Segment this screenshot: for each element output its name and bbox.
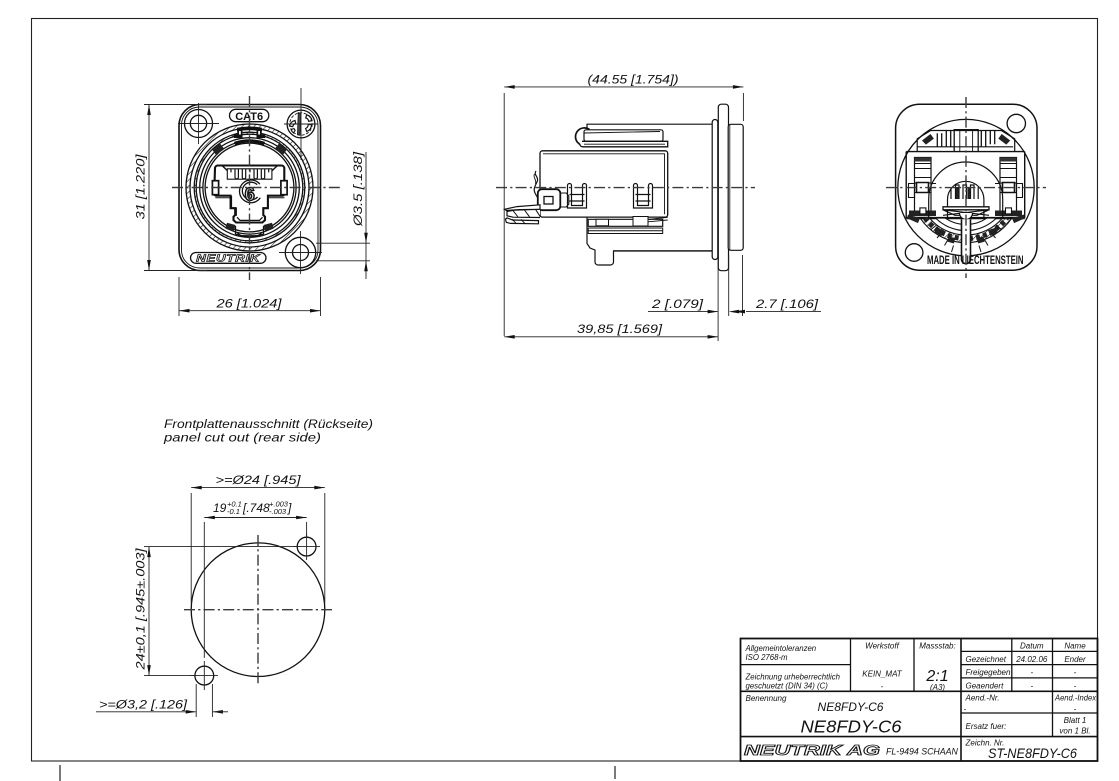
svg-text:(A3): (A3) (930, 683, 945, 692)
svg-text:MADE IN LIECHTENSTEIN: MADE IN LIECHTENSTEIN (927, 253, 1024, 267)
svg-text:ST-NE8FDY-C6: ST-NE8FDY-C6 (988, 745, 1077, 761)
svg-text:panel cut out (rear side): panel cut out (rear side) (163, 431, 321, 445)
svg-text:Aend.-Nr.: Aend.-Nr. (965, 694, 1000, 703)
svg-text:Aend.-Index: Aend.-Index (1054, 694, 1097, 703)
svg-text:26 [1.024]: 26 [1.024] (215, 297, 282, 311)
svg-text:Blatt 1: Blatt 1 (1064, 716, 1087, 725)
svg-text:Allgemeintoleranzen: Allgemeintoleranzen (745, 644, 817, 653)
svg-text:NE8FDY-C6: NE8FDY-C6 (818, 700, 884, 714)
svg-text:ISO 2768-m: ISO 2768-m (746, 653, 789, 662)
svg-text:von 1 Bl.: von 1 Bl. (1059, 727, 1090, 736)
svg-text:Massstab:: Massstab: (919, 642, 955, 651)
svg-text:Freigegeben: Freigegeben (966, 668, 1011, 677)
svg-text:>=Ø3,2 [.126]: >=Ø3,2 [.126] (99, 698, 188, 712)
svg-text:Frontplattenausschnitt (Rückse: Frontplattenausschnitt (Rückseite) (164, 417, 373, 431)
svg-text:Gezeichnet: Gezeichnet (966, 655, 1007, 664)
svg-text:-: - (1074, 681, 1077, 690)
svg-text:-: - (881, 682, 884, 691)
svg-text:24.02.06: 24.02.06 (1015, 655, 1048, 664)
svg-text:-: - (1030, 668, 1033, 677)
svg-text:2 [.079]: 2 [.079] (651, 297, 704, 311)
svg-text:Ersatz fuer:: Ersatz fuer: (966, 722, 1007, 731)
svg-text:Benennung: Benennung (746, 694, 787, 703)
svg-text:-: - (1074, 705, 1077, 714)
svg-text:NEUTRIK AG: NEUTRIK AG (744, 743, 880, 759)
svg-text:31 [1.220]: 31 [1.220] (134, 154, 148, 220)
svg-text:19: 19 (213, 501, 227, 515)
svg-text:-0.1: -0.1 (227, 507, 240, 516)
svg-text:>=Ø24 [.945]: >=Ø24 [.945] (216, 473, 302, 487)
svg-text:Geaendert: Geaendert (966, 681, 1005, 690)
svg-text:-: - (1030, 681, 1033, 690)
svg-text:24±0,1 [.945±.003]: 24±0,1 [.945±.003] (134, 548, 148, 671)
svg-text:2.7 [.106]: 2.7 [.106] (755, 297, 819, 311)
svg-text:-: - (964, 705, 967, 714)
svg-text:Werkstoff: Werkstoff (865, 642, 899, 651)
svg-text:-.003: -.003 (269, 507, 287, 516)
svg-text:39,85 [1.569]: 39,85 [1.569] (577, 322, 663, 336)
svg-text:KEIN_MAT: KEIN_MAT (862, 670, 903, 679)
svg-text:Zeichnung urheberrechtlich: Zeichnung urheberrechtlich (745, 673, 840, 682)
svg-text:-: - (1074, 668, 1077, 677)
svg-text:geschuetzt (DIN 34) (C): geschuetzt (DIN 34) (C) (746, 682, 829, 691)
svg-text:NEUTRIK: NEUTRIK (196, 253, 260, 264)
svg-text:FL-9494 SCHAAN: FL-9494 SCHAAN (886, 747, 959, 757)
svg-text:Name: Name (1064, 642, 1086, 651)
svg-text:(44.55 [1.754]): (44.55 [1.754]) (588, 73, 679, 87)
svg-text:Datum: Datum (1020, 642, 1044, 651)
svg-text:Ø3.5 [.138]: Ø3.5 [.138] (351, 151, 365, 227)
svg-text:]: ] (287, 501, 292, 515)
svg-text:[.748: [.748 (242, 501, 270, 515)
svg-text:Ender: Ender (1064, 655, 1086, 664)
svg-text:NE8FDY-C6: NE8FDY-C6 (801, 717, 902, 737)
